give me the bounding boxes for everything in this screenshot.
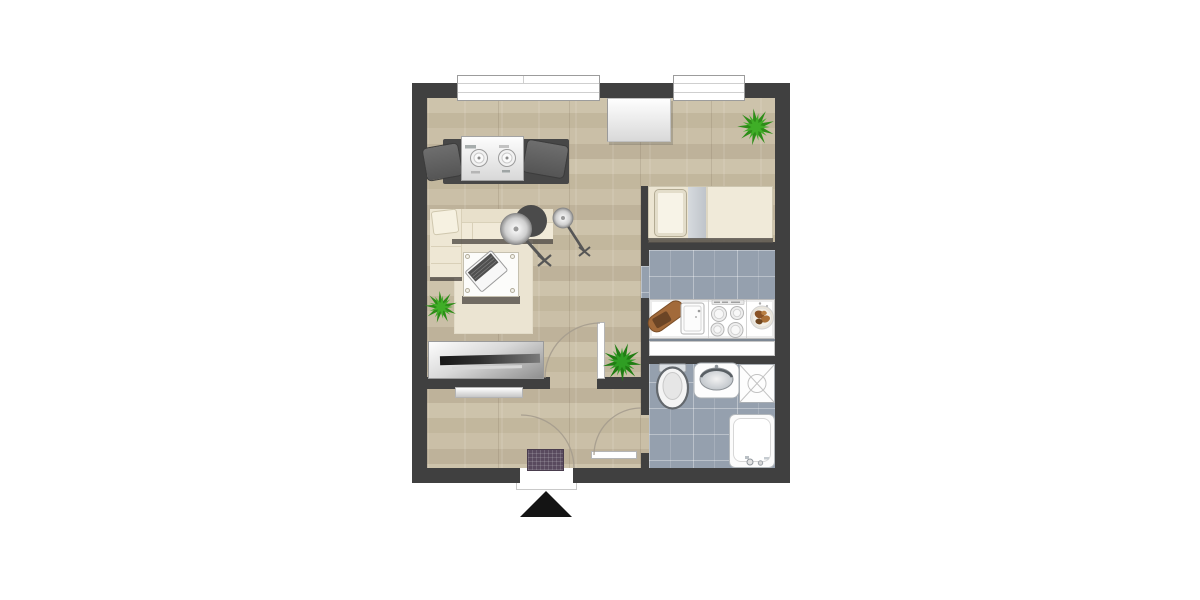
sofa-cushion-divider [431, 246, 461, 247]
bathroom-door-leaf [591, 451, 637, 459]
table-foot [510, 254, 515, 259]
coffee-table-shadow [462, 296, 520, 304]
wall-bath-left-lower [641, 453, 649, 468]
wall-kitchen-left [641, 298, 649, 364]
bed-sheet-fold [688, 187, 706, 239]
wall-bath-left-upper [641, 364, 649, 415]
wall-outer-right [775, 98, 790, 468]
table-foot [465, 288, 470, 293]
entry-arrow [520, 491, 572, 517]
counter-divider [746, 300, 747, 338]
window-frame-tick [523, 76, 524, 84]
window-left [457, 75, 600, 101]
shower [739, 364, 775, 403]
living-room-door-leaf [597, 322, 605, 379]
bed-blanket [706, 187, 772, 239]
bed-pillow [654, 189, 687, 237]
bathtub-inner [733, 418, 771, 462]
wardrobe [607, 98, 671, 142]
table-foot [510, 288, 515, 293]
doormat [527, 449, 564, 471]
bed-shadow [648, 238, 773, 243]
window-right [673, 75, 745, 101]
counter-divider [708, 300, 709, 338]
kitchen-counter [649, 299, 775, 339]
sofa-cushion-divider [512, 223, 513, 240]
speaker-left [421, 142, 463, 182]
window-frame-line [458, 92, 599, 93]
wall-outer-bottom [412, 468, 790, 483]
utility-cabinet [649, 341, 775, 356]
wall-kitchen-top [641, 242, 775, 250]
entry-threshold [516, 483, 577, 490]
speaker-right [521, 139, 569, 180]
throw-pillow [431, 209, 460, 236]
sofa-shadow [452, 239, 553, 244]
window-frame-line [674, 83, 744, 84]
sofa-cushion-divider [431, 263, 461, 264]
sofa-chaise-shadow [430, 277, 462, 281]
table-foot [465, 254, 470, 259]
wall-bathroom-top [641, 356, 775, 364]
hall-shelf [455, 387, 523, 398]
stereo-cabinet [461, 136, 524, 181]
kitchen-doorway-floor [641, 266, 649, 298]
sofa-cushion-divider [472, 223, 473, 240]
floor-plan-canvas [0, 0, 1200, 600]
counter-shadow-line [649, 339, 775, 341]
window-frame-line [458, 83, 599, 84]
window-frame-line [674, 92, 744, 93]
